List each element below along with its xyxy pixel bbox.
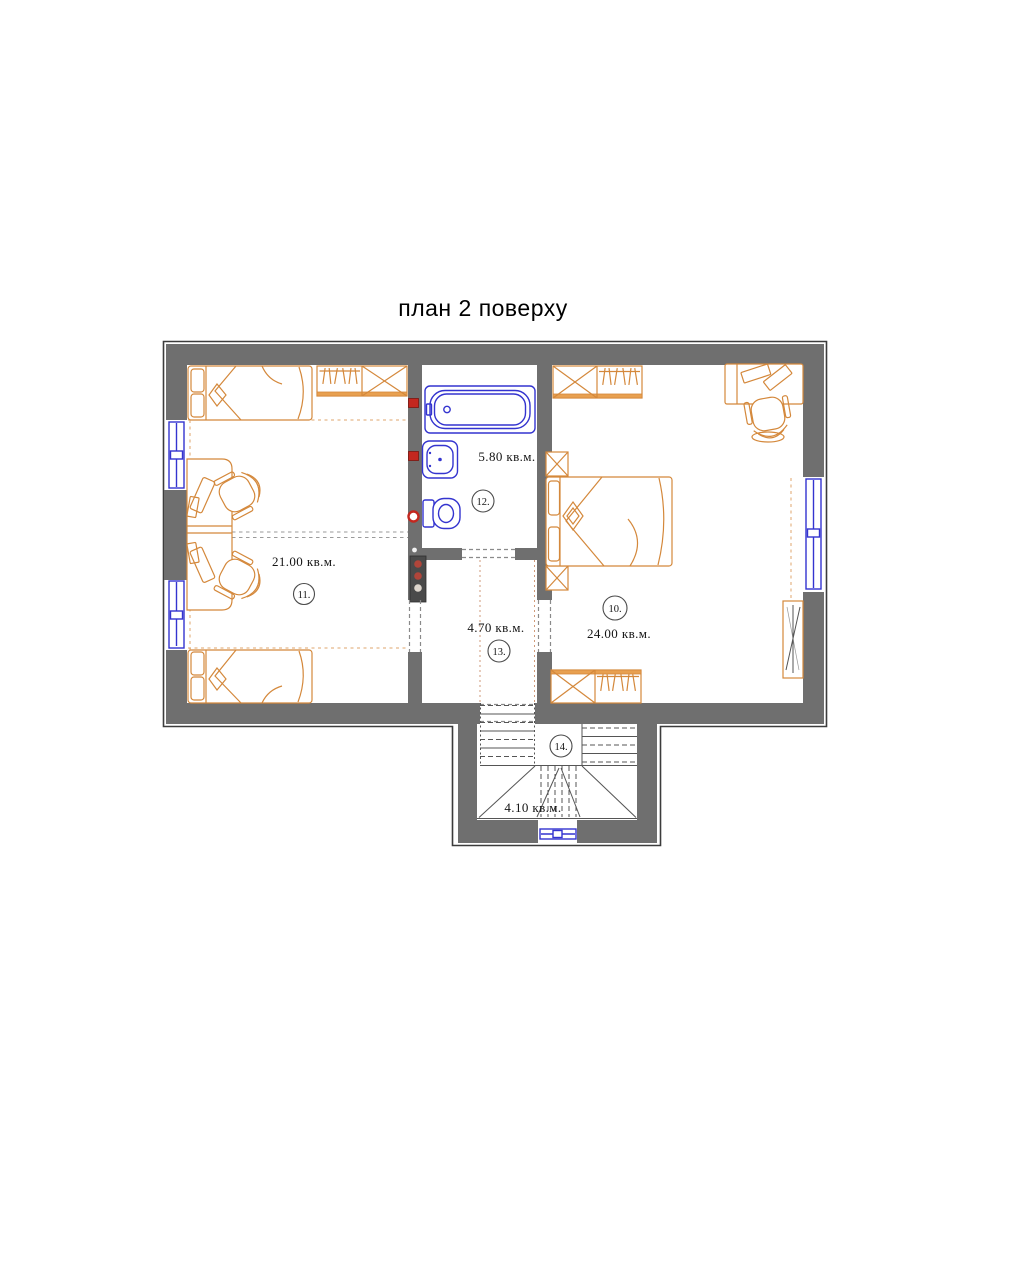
window <box>169 581 184 648</box>
chimney-flue-block <box>410 548 426 602</box>
floor-plan-page: план 2 поверху <box>0 0 1014 1280</box>
room-area-label: 4.70 кв.м. <box>467 620 524 635</box>
room-area-label: 4.10 кв.м. <box>504 800 561 815</box>
nightstand <box>546 452 568 476</box>
room-11-furniture <box>187 366 407 703</box>
room-number: 13. <box>492 647 505 658</box>
sink <box>423 441 458 478</box>
floor-plan-drawing: 10. 24.00 кв.м. 11. 21.00 кв.м. 12. 5.80… <box>0 0 1014 1280</box>
room-label-10: 10. 24.00 кв.м. <box>587 596 651 641</box>
room-label-12: 12. 5.80 кв.м. <box>472 449 536 512</box>
window <box>169 422 184 488</box>
room-area-label: 21.00 кв.м. <box>272 554 336 569</box>
wardrobe <box>317 366 407 396</box>
bed <box>188 650 312 703</box>
window <box>540 829 576 839</box>
nightstand <box>546 566 568 590</box>
wardrobe <box>553 366 642 398</box>
window <box>806 479 821 589</box>
room-area-label: 5.80 кв.м. <box>478 449 535 464</box>
toilet <box>423 499 460 529</box>
radiator <box>783 601 803 678</box>
room-number: 14. <box>554 742 567 753</box>
wardrobe <box>551 670 641 703</box>
room-label-13: 13. 4.70 кв.м. <box>467 620 524 662</box>
double-bed <box>546 477 672 566</box>
room-number: 11. <box>298 590 311 601</box>
bed <box>188 366 312 420</box>
bathtub <box>425 386 535 433</box>
room-area-label: 24.00 кв.м. <box>587 626 651 641</box>
room-label-11: 11. 21.00 кв.м. <box>272 554 336 605</box>
room-number: 10. <box>608 604 621 615</box>
room-10-furniture <box>546 364 803 703</box>
room-number: 12. <box>476 497 489 508</box>
